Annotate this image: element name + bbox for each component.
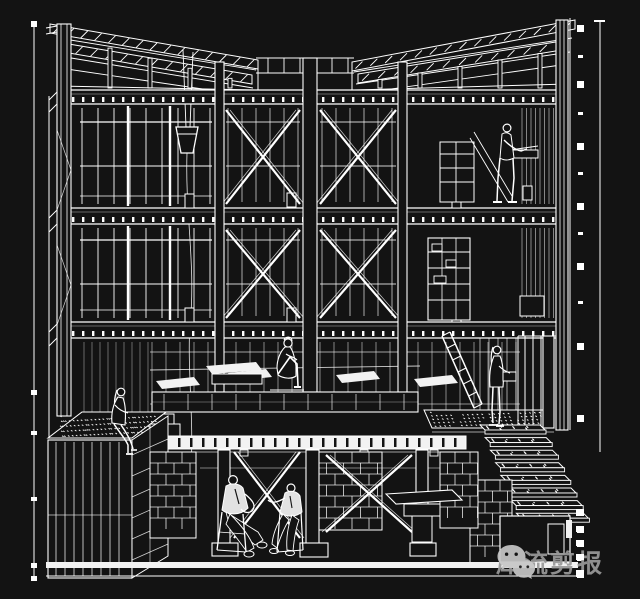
ruler-tick-overlay [576, 540, 584, 546]
ruler-tick-overlay [576, 526, 584, 532]
ladder [442, 332, 482, 408]
roof-right [352, 18, 575, 94]
ruler-right [577, 21, 605, 578]
canvas: 犀流剪报 [0, 0, 640, 599]
platform [148, 392, 466, 456]
right-wall [556, 20, 570, 430]
ruler-tick-overlay [576, 509, 584, 516]
ruler-left [31, 21, 37, 581]
watermark: 犀流剪报 [494, 541, 604, 587]
person-sitting-on-platform [270, 337, 304, 390]
wechat-icon [494, 541, 536, 587]
ruler-tick-overlay [576, 570, 584, 577]
roof-left [46, 24, 258, 96]
person-on-chair-right [268, 484, 303, 556]
section-drawing [0, 0, 640, 599]
ruler-tick-overlay [576, 554, 584, 560]
left-wall [49, 24, 71, 438]
